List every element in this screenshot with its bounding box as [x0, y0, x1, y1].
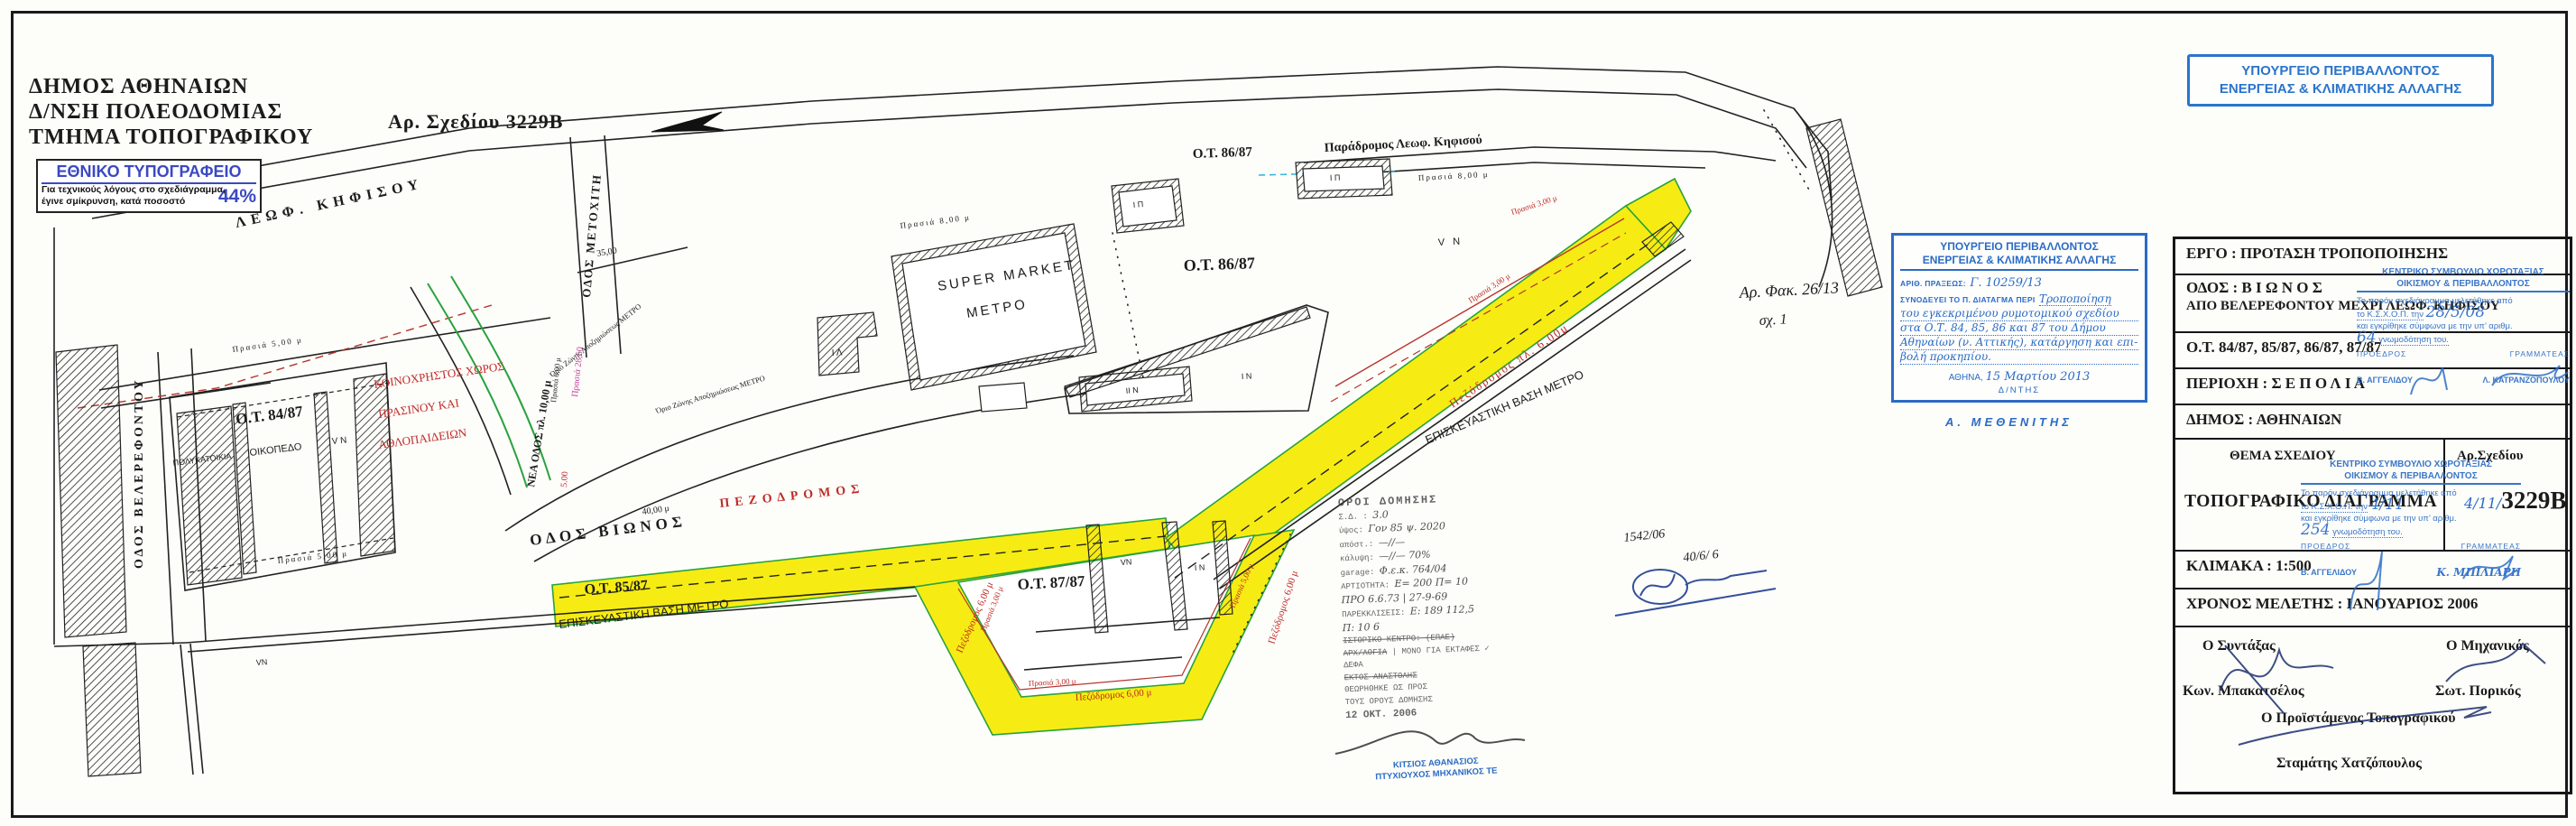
storeys-label: Ι Ν [1242, 371, 1252, 381]
decree-signature-name: Α. ΜΕΘΕΝΙΤΗΣ [1945, 415, 2073, 429]
setback-label: Πρασιά 8,00 μ [1418, 170, 1490, 182]
blue-hand-note: 1542/06 [1623, 527, 1666, 545]
signature-scribbles [2175, 627, 2570, 786]
decree-date: 15 Μαρτίου 2013 [1986, 370, 2091, 384]
terms-label: ύψος: [1339, 525, 1363, 535]
stamp-text: και εγκρίθηκε σύμφωνα με την υπ’ αριθμ. [2357, 320, 2570, 332]
decree-text-5: βολή προκηπίου. [1900, 350, 2138, 365]
agency-line-3: ΤΜΗΜΑ ΤΟΠΟΓΡΑΦΙΚΟΥ [29, 125, 313, 150]
decree-stamp-line2: ΕΝΕΡΓΕΙΑΣ & ΚΛΙΜΑΤΙΚΗΣ ΑΛΛΑΓΗΣ [1900, 254, 2138, 271]
storeys-label: V N [1438, 237, 1463, 248]
titleblock-dimos: ΔΗΜΟΣ : ΑΘΗΝΑΙΩΝ [2175, 405, 2570, 440]
terms-value: Ε= 200 Π= 10 [1394, 575, 1468, 589]
stamp-text: γνωμοδότηση του. [2378, 335, 2449, 346]
stamp-council-line1: ΚΕΝΤΡΙΚΟ ΣΥΜΒΟΥΛΙΟ ΧΩΡΟΤΑΞΙΑΣ [2357, 266, 2570, 278]
reduction-note-line2: έγινε σμίκρυνση, κατά ποσοστό [42, 196, 185, 207]
handwritten-notes-blue [1615, 570, 1776, 616]
storeys-label: VΝ [1121, 557, 1132, 567]
stamp-text: γνωμοδότηση του. [2332, 527, 2403, 538]
approval-stamp-lower: ΚΕΝΤΡΙΚΟ ΣΥΜΒΟΥΛΙΟ ΧΩΡΟΤΑΞΙΑΣ ΟΙΚΙΣΜΟΥ &… [2301, 459, 2521, 579]
approval-stamp-upper: ΚΕΝΤΡΙΚΟ ΣΥΜΒΟΥΛΙΟ ΧΩΡΟΤΑΞΙΑΣ ΟΙΚΙΣΜΟΥ &… [2357, 266, 2570, 386]
metro-zone-boundary-label: Όριο Ζώνης Αποζημιώσεως ΜΕΤΡΟ [654, 374, 766, 416]
stamp-num-hand: 254 [2301, 521, 2330, 539]
file-number-note: σχ. 1 [1759, 311, 1787, 329]
decree-text-4: Αθηναίων (ν. Αττικής), κατάργηση και επι… [1900, 336, 2138, 350]
highlight-yellow-roads [552, 179, 1691, 735]
ministry-badge-line1: ΥΠΟΥΡΓΕΙΟ ΠΕΡΙΒΑΛΛΟΝΤΟΣ [2192, 62, 2489, 80]
storeys-label: Ι Π [1330, 173, 1341, 182]
agency-line-1: ΔΗΜΟΣ ΑΘΗΝΑΙΩΝ [29, 74, 313, 99]
stamp-text: και εγκρίθηκε σύμφωνα με την υπ’ αριθμ. [2301, 513, 2521, 524]
agency-header: ΔΗΜΟΣ ΑΘΗΝΑΙΩΝ Δ/ΝΣΗ ΠΟΛΕΟΔΟΜΙΑΣ ΤΜΗΜΑ Τ… [29, 74, 313, 150]
storeys-label: Ι Λ [832, 348, 844, 358]
building-terms-stamp: ΟΡΟΙ ΔΟΜΗΣΗΣ Σ.Δ. : 3.0 ύψος: Γον 85 ψ. … [1338, 492, 1514, 723]
stamp-signatures [2357, 349, 2570, 404]
stamp-text: το Κ.Σ.Χ.Ο.Π. την [2301, 502, 2368, 513]
topographic-diagram-sheet: ΛΕΩΦ. ΚΗΦΙΣΟΥ Παράδρομος Λεωφ. Κηφισού Ο… [0, 0, 2576, 826]
stamp-council-line2: ΟΙΚΙΣΜΟΥ & ΠΕΡΙΒΑΛΛΟΝΤΟΣ [2301, 470, 2521, 485]
storeys-label: V N [331, 436, 347, 447]
decree-stamp-line1: ΥΠΟΥΡΓΕΙΟ ΠΕΡΙΒΑΛΛΟΝΤΟΣ [1900, 240, 2138, 254]
terms-value: —//— [1378, 535, 1405, 548]
north-arrow-icon [651, 112, 724, 132]
setback-label: Πρασιά 8,00 μ [900, 212, 971, 230]
terms-value: Φ.ε.κ. 764/04 [1380, 562, 1447, 577]
dimension-label: 5.00 [559, 471, 570, 487]
terms-label: κάλυψη: [1340, 553, 1374, 563]
terms-value: Ε: 189 112,5 [1410, 603, 1475, 617]
terms-value: Π: 10 6 [1343, 620, 1380, 633]
decree-label: ΣΥΝΟΔΕΥΕΙ ΤΟ Π. ΔΙΑΤΑΓΜΑ ΠΕΡΙ [1900, 295, 2036, 304]
blue-hand-note: 40/6/ 6 [1683, 548, 1720, 565]
stamp-council-line1: ΚΕΝΤΡΙΚΟ ΣΥΜΒΟΥΛΙΟ ΧΩΡΟΤΑΞΙΑΣ [2301, 459, 2521, 470]
street-label-vionos: ΟΔΟΣ ΒΙΩΝΟΣ [529, 513, 688, 549]
building-polykatoikia [177, 406, 242, 585]
dimension-label: 35,00 [596, 246, 618, 259]
checkmark-icon: ✓ [1484, 644, 1490, 653]
terms-value: —//— 70% [1379, 549, 1431, 562]
metro-zone-boundary-label: Όριο Ζώνης Αποζημιώσεως ΜΕΤΡΟ [547, 302, 642, 379]
pedestrian-road-label: Πεζόδρομος 6,00 μ [1266, 569, 1300, 645]
decree-director-title: Δ/ΝΤΗΣ [1900, 385, 2138, 395]
ministry-badge: ΥΠΟΥΡΓΕΙΟ ΠΕΡΙΒΑΛΛΟΝΤΟΣ ΕΝΕΡΓΕΙΑΣ & ΚΛΙΜ… [2187, 54, 2494, 107]
terms-note: ΜΟΝΟ ΓΙΑ ΕΚΤΑΦΕΣ [1401, 644, 1480, 655]
praxis-label: ΑΡΙΘ. ΠΡΑΞΕΩΣ: [1900, 279, 1966, 288]
decree-text-1: Τροποποίηση [2039, 292, 2111, 306]
terms-label: απόστ.: [1339, 539, 1373, 549]
storeys-label: Ι Π [1132, 200, 1143, 209]
terms-value: ΠΡΟ 6.6.73 | 27-9-69 [1341, 590, 1447, 606]
stamp-text: το Κ.Σ.Χ.Ο.Π. την [2357, 310, 2424, 320]
terms-label: garage: [1340, 567, 1374, 577]
terms-value: Γον 85 ψ. 2020 [1368, 520, 1445, 534]
stamp-council-line2: ΟΙΚΙΣΜΟΥ & ΠΕΡΙΒΑΛΛΟΝΤΟΣ [2357, 278, 2570, 292]
terms-label: ΠΑΡΕΚΚΛΙΣΕΙΣ: [1342, 608, 1406, 619]
block-label-ot86: Ο.Τ. 86/87 [1183, 254, 1255, 274]
terms-struck-arch: ΑΡΧ/ΛΟΓΙΑ [1343, 647, 1388, 658]
stamp-signatures [2301, 538, 2521, 619]
block-label-ot87: Ο.Τ. 87/87 [1017, 572, 1085, 593]
stamp-text: Το παρόν σχεδιάγραμμα μελετήθηκε από [2301, 487, 2521, 499]
block-label-ot86: Ο.Τ. 86/87 [1193, 145, 1253, 162]
decree-text-2: του εγκεκριμένου ρυμοτομικού σχεδίου [1900, 307, 2138, 321]
building-IL [817, 312, 877, 376]
decree-stamp: ΥΠΟΥΡΓΕΙΟ ΠΕΡΙΒΑΛΛΟΝΤΟΣ ΕΝΕΡΓΕΙΑΣ & ΚΛΙΜ… [1891, 233, 2147, 403]
pedestrian-road-label: ΠΕΖΟΔΡΟΜΟΣ [719, 482, 865, 511]
drawing-number: Αρ. Σχεδίου 3229Β [388, 110, 563, 134]
national-printing-office-box: ΕΘΝΙΚΟ ΤΥΠΟΓΡΑΦΕΙΟ Για τεχνικούς λόγους … [36, 159, 262, 213]
map-labels: ΛΕΩΦ. ΚΗΦΙΣΟΥ Παράδρομος Λεωφ. Κηφισού Ο… [133, 134, 1839, 703]
terms-label: Σ.Δ. : [1338, 512, 1368, 522]
file-number-note: Αρ. Φακ. 26/13 [1738, 278, 1839, 302]
area-label-green-space: ΠΡΑΣΙΝΟΥ ΚΑΙ [377, 396, 459, 421]
setback-label: Πρασιά 3,00 μ [1510, 193, 1558, 217]
stamp-date-hand: 28/5/08 [2426, 303, 2486, 321]
reduction-note-line1: Για τεχνικούς λόγους στο σχεδιάγραμμα, [42, 184, 256, 196]
street-label-velerefontou: ΟΔΟΣ ΒΕΛΕΡΕΦΟΝΤΟΥ [133, 377, 146, 569]
storeys-label: Ι Ν [1195, 562, 1205, 572]
praxis-value: Γ. 10259/13 [1970, 276, 2042, 290]
parcel-label-oikopedo: ΟΙΚΟΠΕΔΟ [249, 441, 303, 459]
printing-office-title: ΕΘΝΙΚΟ ΤΥΠΟΓΡΑΦΕΙΟ [42, 162, 256, 184]
decree-text-3: στα Ο.Τ. 84, 85, 86 και 87 του Δήμου [1900, 321, 2138, 336]
ministry-badge-line2: ΕΝΕΡΓΕΙΑΣ & ΚΛΙΜΑΤΙΚΗΣ ΑΛΛΑΓΗΣ [2192, 80, 2489, 98]
street-label-kifisou: ΛΕΩΦ. ΚΗΦΙΣΟΥ [234, 176, 425, 231]
decree-city: ΑΘΗΝΑ, [1949, 373, 1983, 383]
stamp-date-hand: 4/11 [2370, 496, 2405, 514]
area-label-green-space: ΑΘΛΟΠΑΙΔΕΙΩΝ [377, 425, 467, 451]
storeys-label: ΙΙ Ν [1125, 385, 1139, 395]
titleblock-signatures: Ο Συντάξας Ο Μηχανικός Κων. Μπακατσέλος … [2175, 627, 2570, 786]
terms-label: ΑΡΤΙΟΤΗΤΑ: [1341, 580, 1390, 591]
storeys-label: VΝ [255, 657, 267, 667]
setback-label: Πρασιά 5,00 μ [232, 335, 303, 354]
agency-line-2: Δ/ΝΣΗ ΠΟΛΕΟΔΟΜΙΑΣ [29, 99, 313, 125]
stamp-num-hand: 64 [2357, 329, 2377, 347]
street-label-metoxiti: ΟΔΟΣ ΜΕΤΟΧΙΤΗ [579, 172, 604, 298]
terms-value: 3.0 [1372, 508, 1389, 521]
